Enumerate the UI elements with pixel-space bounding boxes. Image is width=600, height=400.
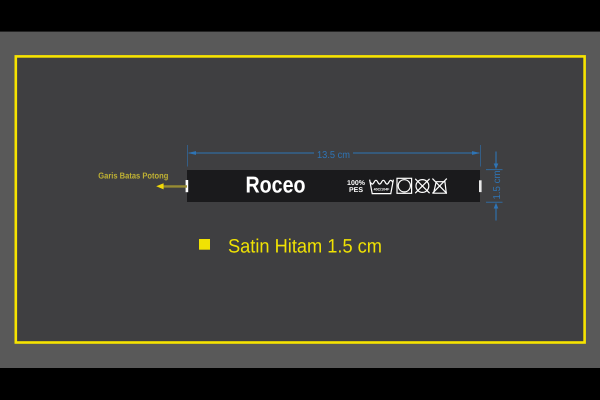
svg-text:40C/104F: 40C/104F — [374, 188, 391, 192]
svg-text:Garis Batas Potong: Garis Batas Potong — [98, 170, 168, 180]
svg-text:PES: PES — [349, 187, 363, 194]
svg-text:Satin Hitam 1.5 cm: Satin Hitam 1.5 cm — [228, 235, 382, 257]
svg-text:Roceo: Roceo — [246, 172, 306, 198]
svg-text:100%: 100% — [347, 180, 366, 187]
svg-text:13.5 cm: 13.5 cm — [317, 150, 350, 161]
svg-text:1.5 cm: 1.5 cm — [492, 171, 503, 200]
